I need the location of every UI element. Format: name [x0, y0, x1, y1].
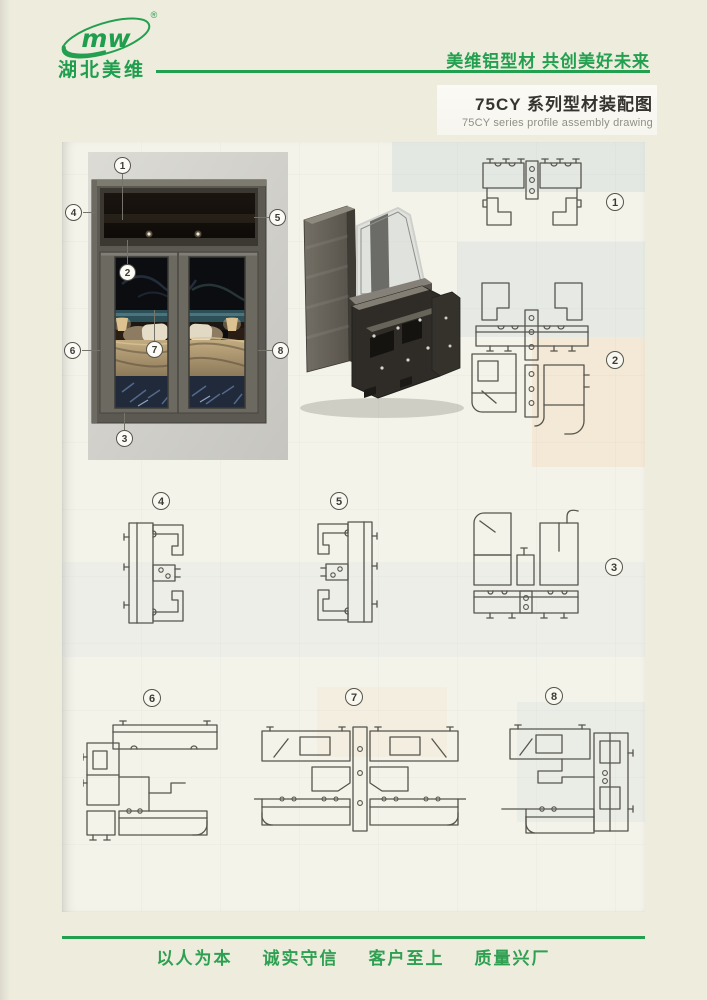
window-photo — [88, 152, 288, 460]
motto-item: 质量兴厂 — [475, 944, 551, 969]
callout-4: 4 — [65, 204, 82, 221]
diagram-label-1: 1 — [606, 193, 624, 211]
callout-line-4 — [83, 212, 95, 213]
callout-7: 7 — [146, 341, 163, 358]
callout-1: 1 — [114, 157, 131, 174]
profile-section-diagram-8 — [496, 717, 636, 847]
callout-line-2 — [127, 240, 128, 264]
diagram-label-8: 8 — [545, 687, 563, 705]
callout-5: 5 — [269, 209, 286, 226]
diagram-label-2: 2 — [606, 351, 624, 369]
diagram-label-3: 3 — [605, 558, 623, 576]
callout-6: 6 — [64, 342, 81, 359]
diagram-label-6: 6 — [143, 689, 161, 707]
profile-section-diagram-2 — [468, 279, 596, 439]
page-title: 75CY 系列型材装配图 — [437, 90, 653, 115]
profile-section-diagram-4 — [121, 517, 207, 629]
motto-item: 以人为本 — [157, 944, 233, 969]
brand-slogan: 美维铝型材 共创美好未来 — [446, 47, 650, 72]
footer-rule — [62, 936, 645, 939]
profile-3d-render — [282, 178, 472, 423]
diagram-label-7: 7 — [345, 688, 363, 706]
brand-logo: mw ® — [48, 4, 168, 62]
title-block: 75CY 系列型材装配图 75CY series profile assembl… — [437, 85, 657, 135]
diagram-label-4: 4 — [152, 492, 170, 510]
logo-text: mw — [81, 24, 131, 53]
callout-line-3 — [124, 413, 125, 430]
brand-name: 湖北美维 — [58, 55, 146, 82]
callout-line-6 — [82, 350, 100, 351]
page-subtitle: 75CY series profile assembly drawing — [437, 117, 653, 129]
callout-line-5 — [254, 217, 269, 218]
window-photo-figure: 1 2 3 4 5 6 7 8 — [88, 152, 288, 460]
profile-section-diagram-5 — [294, 516, 380, 628]
callout-line-8 — [258, 350, 272, 351]
diagram-label-5: 5 — [330, 492, 348, 510]
registered-mark: ® — [151, 10, 158, 20]
callout-3: 3 — [116, 430, 133, 447]
callout-8: 8 — [272, 342, 289, 359]
catalog-page: mw ® 湖北美维 美维铝型材 共创美好未来 75CY 系列型材装配图 75CY… — [0, 0, 707, 1000]
motto-item: 诚实守信 — [263, 944, 339, 969]
callout-line-1 — [122, 174, 123, 220]
profile-section-diagram-1 — [478, 153, 586, 233]
footer-motto: 以人为本 诚实守信 客户至上 质量兴厂 — [0, 944, 707, 969]
profile-section-diagram-6 — [83, 717, 223, 849]
callout-2: 2 — [119, 264, 136, 281]
motto-item: 客户至上 — [369, 944, 445, 969]
profile-section-diagram-7 — [254, 715, 466, 849]
callout-line-7 — [154, 310, 155, 341]
profile-section-diagram-3 — [464, 499, 594, 629]
